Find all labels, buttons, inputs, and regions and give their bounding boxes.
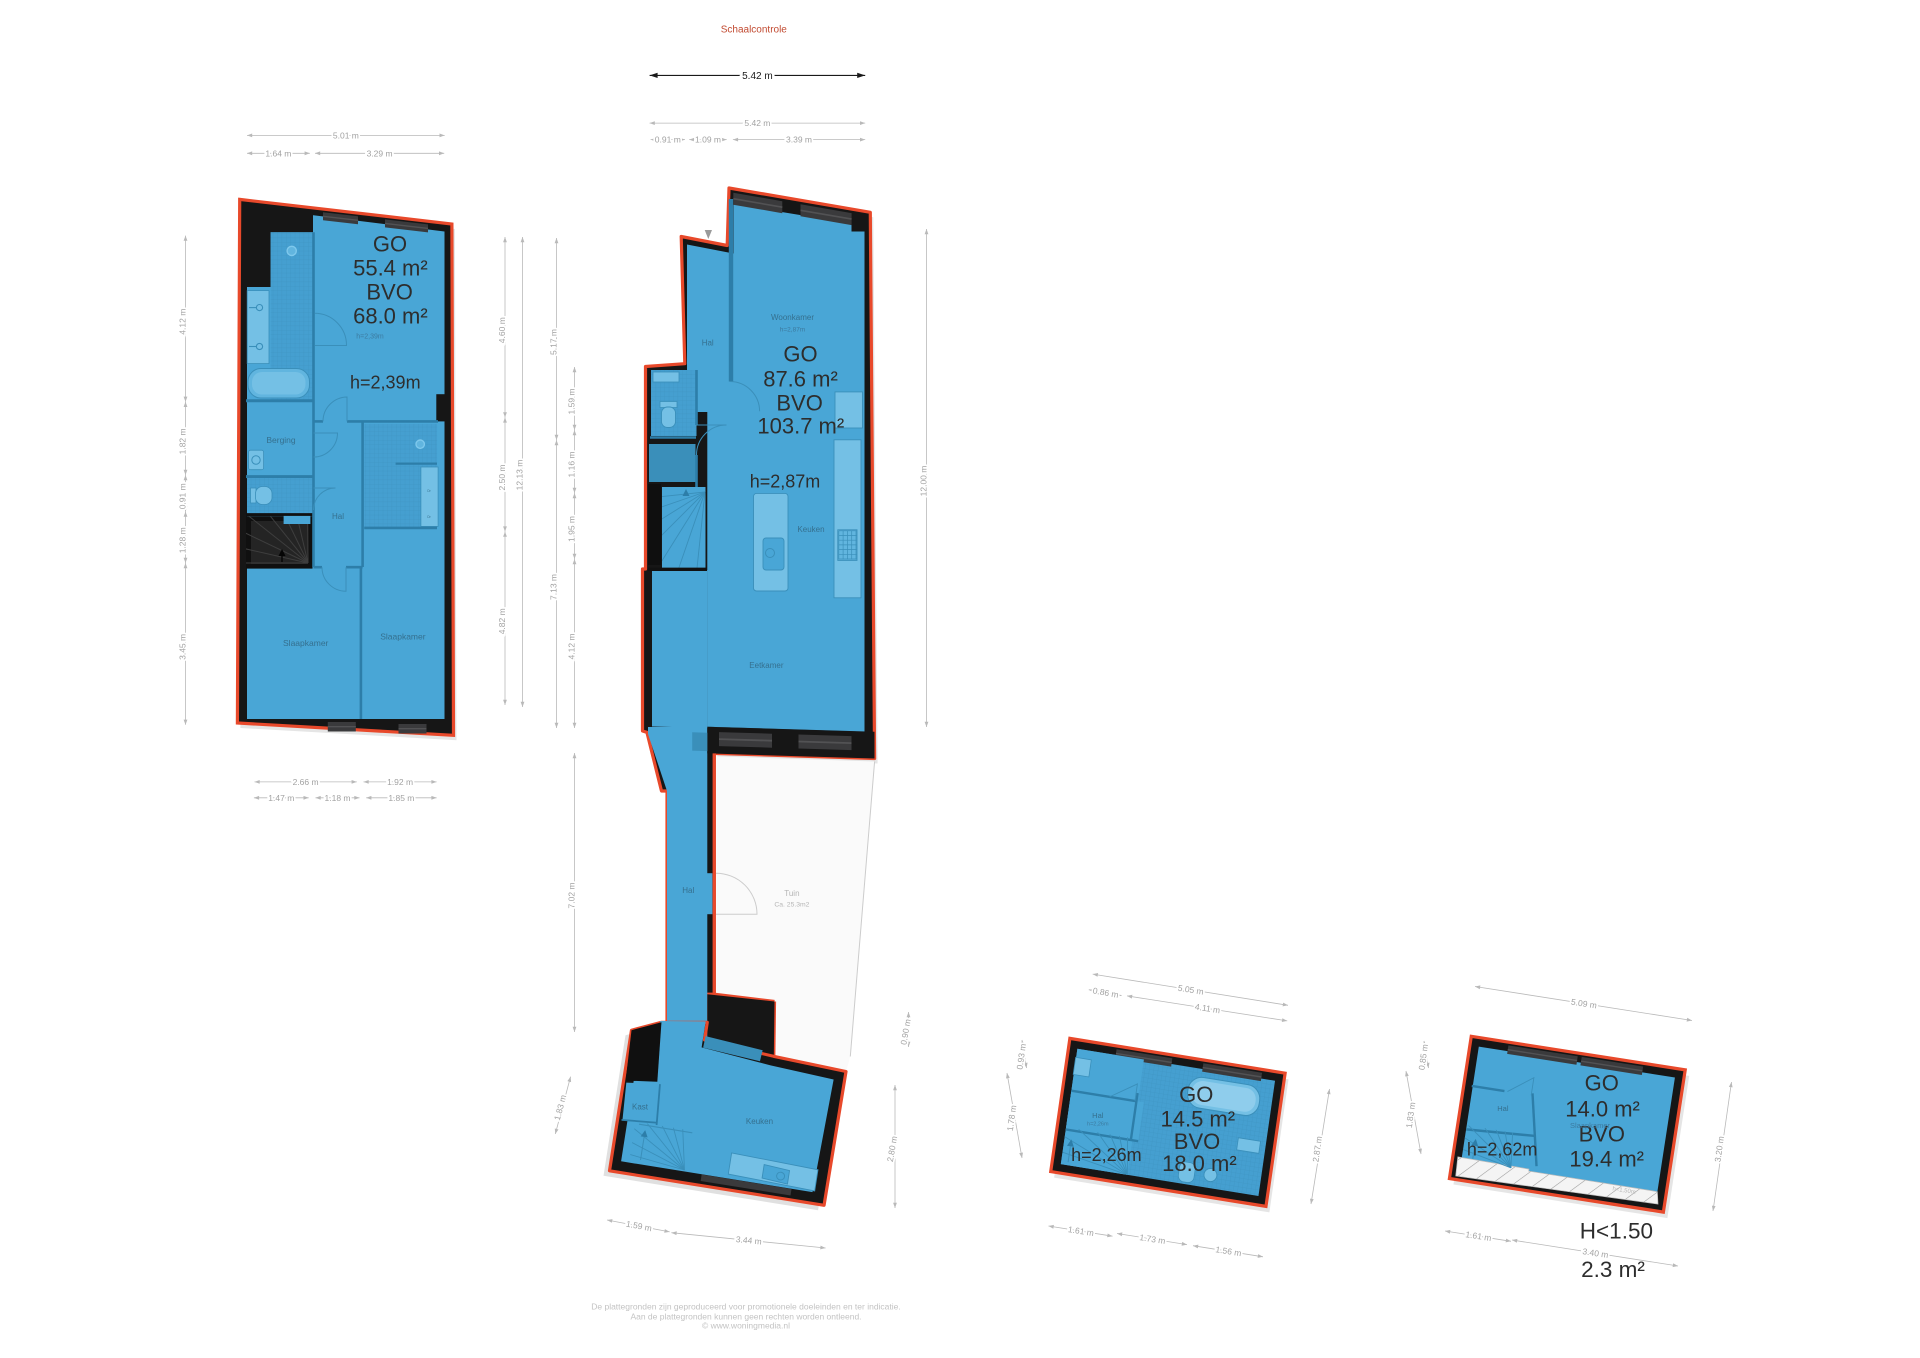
svg-text:Keuken: Keuken bbox=[746, 1117, 773, 1126]
svg-text:h=2,87m: h=2,87m bbox=[780, 326, 805, 333]
svg-text:Kast: Kast bbox=[632, 1102, 649, 1111]
svg-text:1.61 m: 1.61 m bbox=[1465, 1229, 1492, 1243]
svg-text:2.80 m: 2.80 m bbox=[885, 1135, 899, 1162]
svg-text:Slaapkamer: Slaapkamer bbox=[283, 638, 329, 648]
svg-text:h=2,39m: h=2,39m bbox=[350, 372, 421, 392]
svg-text:h=2,26m: h=2,26m bbox=[1071, 1145, 1142, 1165]
svg-text:Slaapkamer: Slaapkamer bbox=[380, 632, 426, 642]
svg-text:h=2,26m: h=2,26m bbox=[1087, 1122, 1109, 1128]
svg-text:Hal: Hal bbox=[332, 512, 344, 521]
svg-text:Berging: Berging bbox=[266, 435, 296, 445]
svg-text:Ca. 25.3m2: Ca. 25.3m2 bbox=[774, 902, 809, 909]
svg-text:Hal: Hal bbox=[682, 886, 694, 895]
svg-text:14.5 m²: 14.5 m² bbox=[1161, 1106, 1236, 1131]
svg-text:1.18 m: 1.18 m bbox=[325, 793, 351, 803]
svg-text:55.4 m²: 55.4 m² bbox=[353, 256, 428, 281]
svg-text:H<1.50: H<1.50 bbox=[1580, 1219, 1653, 1244]
svg-text:4.12 m: 4.12 m bbox=[567, 634, 577, 660]
svg-text:4.60 m: 4.60 m bbox=[497, 317, 507, 343]
svg-text:2.66 m: 2.66 m bbox=[293, 777, 319, 787]
svg-text:3.29 m: 3.29 m bbox=[367, 148, 393, 158]
svg-text:19.4 m²: 19.4 m² bbox=[1569, 1147, 1644, 1172]
svg-text:103.7 m²: 103.7 m² bbox=[757, 414, 844, 439]
svg-text:Eetkamer: Eetkamer bbox=[749, 661, 784, 670]
svg-text:5.17 m: 5.17 m bbox=[549, 329, 559, 355]
svg-text:1.82 m: 1.82 m bbox=[178, 428, 188, 454]
svg-text:1.73 m: 1.73 m bbox=[1139, 1232, 1166, 1246]
svg-text:1.92 m: 1.92 m bbox=[387, 777, 413, 787]
svg-text:h=2,87m: h=2,87m bbox=[750, 472, 821, 492]
svg-text:GO: GO bbox=[373, 231, 407, 256]
svg-text:1.83 m: 1.83 m bbox=[552, 1094, 568, 1122]
svg-text:4.11 m: 4.11 m bbox=[1194, 1002, 1221, 1016]
svg-text:1.47 m: 1.47 m bbox=[268, 793, 294, 803]
svg-text:0.91 m: 0.91 m bbox=[655, 135, 681, 145]
svg-text:1.09 m: 1.09 m bbox=[695, 135, 721, 145]
svg-text:GO: GO bbox=[1179, 1082, 1213, 1107]
svg-text:3.44 m: 3.44 m bbox=[735, 1234, 762, 1247]
svg-text:0.90 m: 0.90 m bbox=[898, 1018, 912, 1045]
svg-text:Slaapkamer: Slaapkamer bbox=[1570, 1121, 1611, 1130]
svg-text:1.59 m: 1.59 m bbox=[625, 1219, 652, 1234]
svg-text:h=2,62m: h=2,62m bbox=[1467, 1139, 1538, 1159]
svg-text:68.0 m²: 68.0 m² bbox=[353, 303, 428, 328]
svg-text:Woonkamer: Woonkamer bbox=[771, 313, 814, 322]
svg-text:Keuken: Keuken bbox=[797, 525, 824, 534]
svg-text:14.0 m²: 14.0 m² bbox=[1565, 1096, 1640, 1121]
svg-text:BVO: BVO bbox=[776, 391, 822, 416]
svg-text:Hal: Hal bbox=[702, 339, 714, 348]
svg-text:7.02 m: 7.02 m bbox=[567, 883, 577, 909]
svg-text:Hal: Hal bbox=[1092, 1111, 1104, 1120]
svg-text:Tuin: Tuin bbox=[784, 889, 799, 898]
svg-text:GO: GO bbox=[1585, 1071, 1619, 1096]
svg-text:4.12 m: 4.12 m bbox=[178, 309, 188, 335]
svg-text:5.42 m: 5.42 m bbox=[742, 71, 773, 82]
svg-text:© www.woningmedia.nl: © www.woningmedia.nl bbox=[702, 1321, 790, 1331]
svg-text:5.09 m: 5.09 m bbox=[1570, 997, 1597, 1011]
svg-text:7.13 m: 7.13 m bbox=[549, 574, 559, 600]
svg-text:5.42 m: 5.42 m bbox=[744, 118, 770, 128]
svg-text:1.28 m: 1.28 m bbox=[178, 527, 188, 553]
svg-text:1.85 m: 1.85 m bbox=[388, 793, 414, 803]
svg-text:1.16 m: 1.16 m bbox=[567, 452, 577, 478]
svg-text:2.3 m²: 2.3 m² bbox=[1581, 1257, 1645, 1282]
svg-text:Schaalcontrole: Schaalcontrole bbox=[721, 25, 788, 36]
svg-text:h=2,39m: h=2,39m bbox=[356, 334, 384, 341]
svg-text:De plattegronden zijn geproduc: De plattegronden zijn geproduceerd voor … bbox=[591, 1301, 901, 1311]
svg-text:1.56 m: 1.56 m bbox=[1215, 1244, 1242, 1258]
svg-text:GO: GO bbox=[783, 342, 817, 367]
svg-text:Hal: Hal bbox=[1497, 1104, 1509, 1113]
svg-text:2.50 m: 2.50 m bbox=[497, 465, 507, 491]
svg-text:0.91 m: 0.91 m bbox=[178, 483, 188, 509]
svg-text:4.82 m: 4.82 m bbox=[497, 608, 507, 634]
svg-text:0.86 m: 0.86 m bbox=[1092, 985, 1119, 999]
svg-text:3.45 m: 3.45 m bbox=[178, 634, 188, 660]
svg-text:BVO: BVO bbox=[366, 279, 412, 304]
svg-text:18.0 m²: 18.0 m² bbox=[1162, 1151, 1237, 1176]
svg-text:1.83 m: 1.83 m bbox=[1404, 1102, 1418, 1129]
svg-text:3.20 m: 3.20 m bbox=[1712, 1136, 1726, 1163]
svg-text:12.00 m: 12.00 m bbox=[919, 466, 929, 497]
svg-text:1.95 m: 1.95 m bbox=[567, 516, 577, 542]
svg-text:12.13 m: 12.13 m bbox=[515, 460, 525, 491]
svg-text:1.59 m: 1.59 m bbox=[567, 389, 577, 415]
svg-text:3.39 m: 3.39 m bbox=[786, 135, 812, 145]
svg-text:2.87 m: 2.87 m bbox=[1310, 1136, 1324, 1163]
svg-text:87.6 m²: 87.6 m² bbox=[763, 367, 838, 392]
svg-text:5.05 m: 5.05 m bbox=[1177, 983, 1204, 997]
svg-text:1.64 m: 1.64 m bbox=[265, 148, 291, 158]
svg-text:5.01 m: 5.01 m bbox=[333, 130, 359, 140]
svg-text:1.61 m: 1.61 m bbox=[1067, 1224, 1094, 1238]
